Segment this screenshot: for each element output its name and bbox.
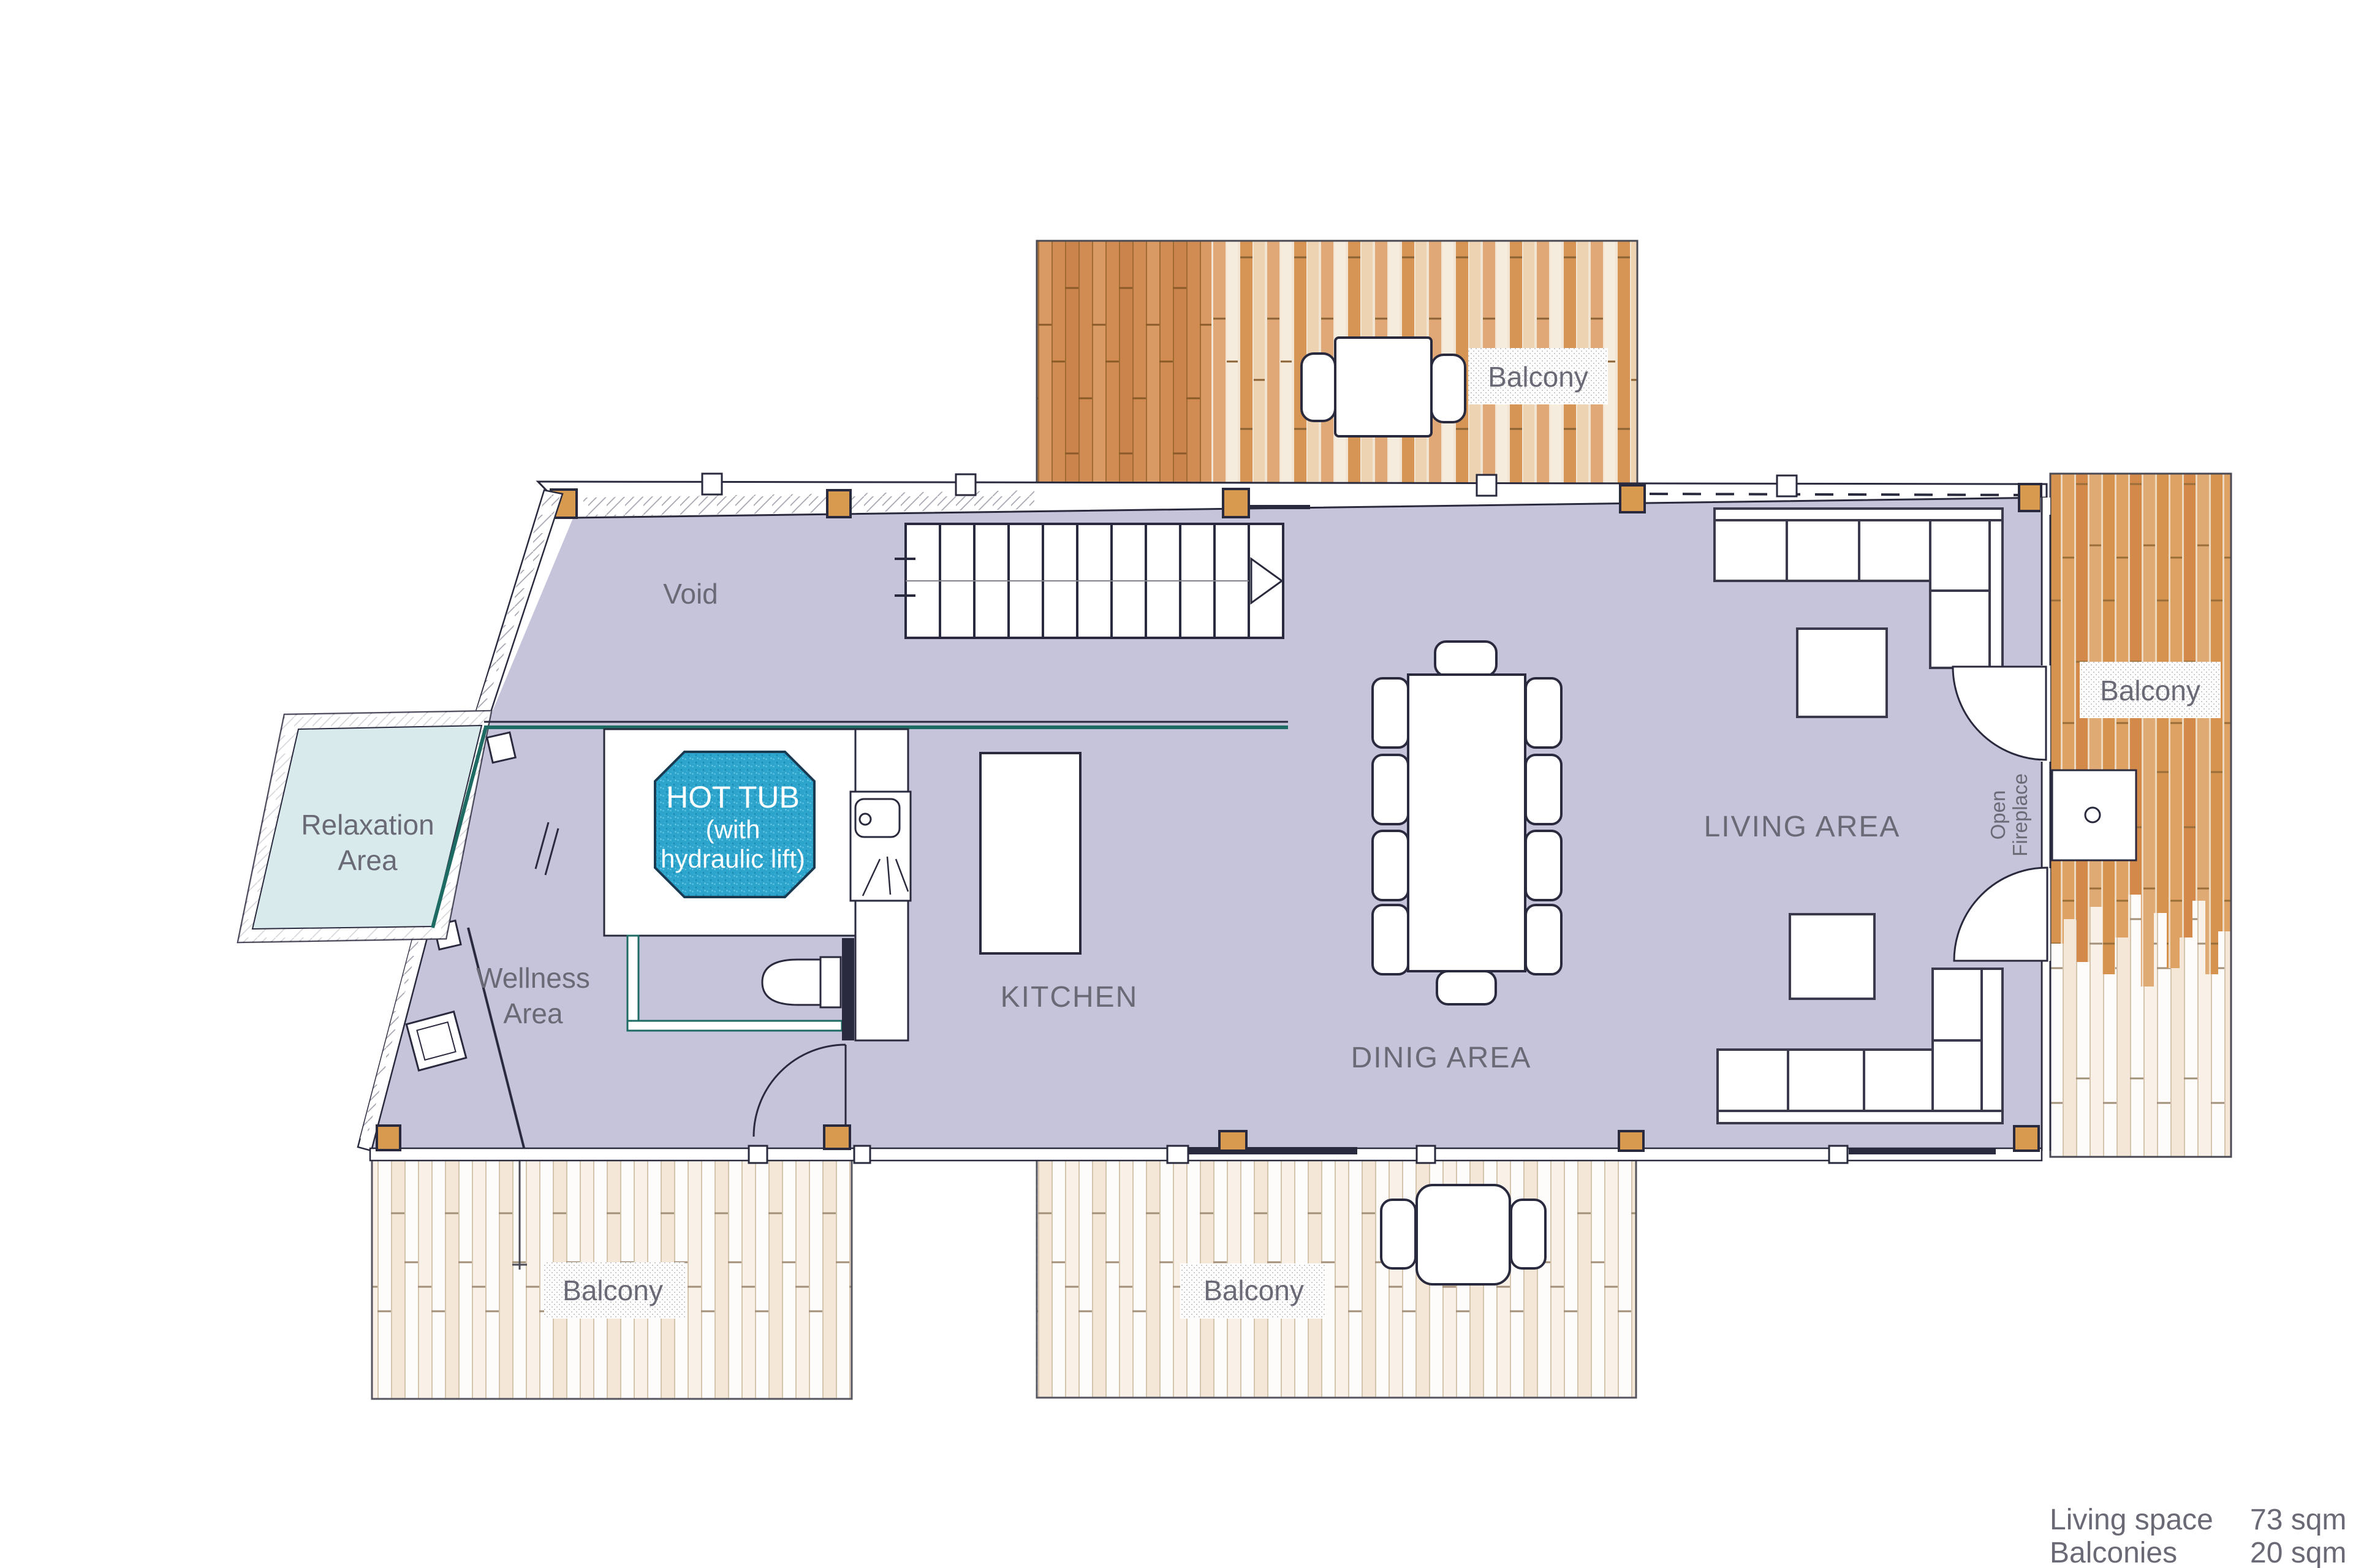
svg-text:73 sqm: 73 sqm — [2250, 1504, 2346, 1536]
svg-text:Relaxation: Relaxation — [301, 809, 434, 841]
svg-text:Balcony: Balcony — [563, 1274, 663, 1306]
svg-text:Balcony: Balcony — [1203, 1274, 1304, 1306]
svg-text:Balcony: Balcony — [1488, 361, 1588, 393]
svg-text:Balcony: Balcony — [2100, 675, 2200, 706]
svg-text:Void: Void — [663, 578, 718, 610]
svg-text:(with: (with — [706, 815, 760, 844]
svg-text:Wellness: Wellness — [476, 962, 590, 994]
svg-text:hydraulic lift): hydraulic lift) — [661, 844, 805, 873]
svg-text:KITCHEN: KITCHEN — [1001, 981, 1139, 1013]
svg-text:Open: Open — [1987, 790, 2009, 840]
svg-text:HOT TUB: HOT TUB — [666, 780, 800, 814]
svg-text:Living space: Living space — [2050, 1504, 2213, 1536]
svg-text:Area: Area — [338, 844, 398, 876]
svg-text:Fireplace: Fireplace — [2009, 773, 2031, 857]
svg-text:20 sqm: 20 sqm — [2250, 1537, 2346, 1568]
svg-text:LIVING AREA: LIVING AREA — [1704, 811, 1901, 843]
svg-text:Area: Area — [503, 998, 563, 1029]
svg-text:Balconies: Balconies — [2050, 1537, 2177, 1568]
svg-text:DINIG AREA: DINIG AREA — [1351, 1042, 1532, 1074]
